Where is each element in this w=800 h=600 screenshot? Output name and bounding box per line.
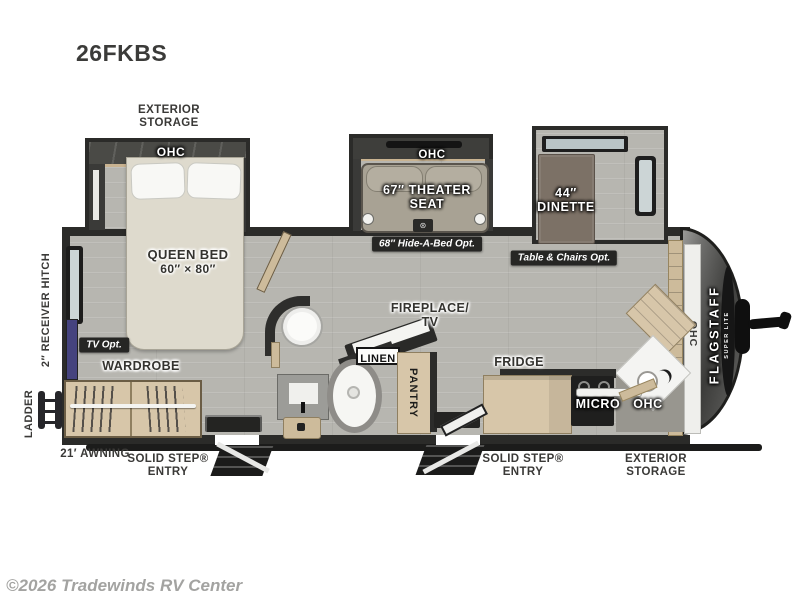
entry-rear-label: SOLID STEP® ENTRY [121, 453, 215, 479]
wardrobe-hangers [72, 386, 115, 432]
dinette-skylight-glass [546, 139, 624, 149]
fridge [483, 375, 572, 434]
bathroom-divider [271, 342, 280, 368]
cupholder [474, 213, 486, 225]
vanity-sink [289, 383, 318, 404]
exterior-storage-bottom-label: EXTERIOR STORAGE [614, 453, 698, 479]
wardrobe-divider [130, 382, 132, 436]
theater-console: ⊛ [413, 219, 433, 232]
ladder-label: LADDER [23, 390, 35, 438]
dinette-label: 44″ DINETTE [529, 186, 603, 215]
tv-bracket [386, 141, 462, 148]
pantry-label: PANTRY [407, 368, 419, 418]
brand-logo: FLAGSTAFF [707, 286, 722, 385]
ladder-rungs [42, 397, 58, 424]
brand-sub-logo: SUPER LITE [724, 311, 730, 358]
vanity-faucet [301, 402, 305, 413]
rear-window-glass [70, 250, 79, 320]
receiver-hitch-label: 2″ RECEIVER HITCH [40, 253, 52, 367]
queen-bed-text: QUEEN BED [118, 248, 258, 263]
cupholder [362, 213, 374, 225]
hitch-knob [777, 311, 793, 331]
theater-slide-left-wall [353, 159, 361, 231]
floorplan-page: 26FKBS QUEEN BED 60″ × 80″ OHC EXTERIOR … [0, 0, 800, 600]
dinette-window-glass [639, 160, 652, 212]
bedroom-left-window [93, 170, 99, 220]
shower-drain [347, 386, 360, 399]
copyright-watermark: ©2026 Tradewinds RV Center [6, 576, 242, 596]
page-title: 26FKBS [76, 40, 167, 67]
fridge-label: FRIDGE [494, 355, 544, 369]
pillow [130, 162, 185, 200]
theater-ohc-label: OHC [407, 149, 457, 162]
fireplace-tv-label: FIREPLACE/ TV [384, 301, 476, 330]
awning-label: 21′ AWNING [60, 448, 130, 461]
kitchen-ohc-label: OHC [633, 397, 663, 411]
theater-seat-label: 67″ THEATER SEAT [367, 183, 487, 212]
entry-landing-rear [205, 415, 262, 432]
bath-stool-handle [297, 423, 305, 431]
queen-bed-size: 60″ × 80″ [118, 263, 258, 277]
pillow [186, 162, 241, 200]
entry-front-label: SOLID STEP® ENTRY [476, 453, 570, 479]
exterior-storage-top-label: EXTERIOR STORAGE [127, 104, 211, 130]
queen-bed-label: QUEEN BED 60″ × 80″ [118, 248, 258, 277]
hide-a-bed-option-badge: 68″ Hide-A-Bed Opt. [372, 237, 482, 252]
bedroom-ohc-label: OHC [146, 146, 196, 160]
wardrobe-rod [70, 404, 196, 408]
linen-label: LINEN [360, 353, 396, 365]
tv-panel [66, 319, 78, 380]
table-chairs-option-badge: Table & Chairs Opt. [511, 251, 617, 266]
tv-option-badge: TV Opt. [79, 338, 129, 353]
wardrobe-hangers [146, 386, 185, 432]
wardrobe-label: WARDROBE [102, 359, 180, 373]
linen-cabinet: LINEN [356, 347, 400, 365]
micro-label: MICRO [576, 397, 621, 411]
